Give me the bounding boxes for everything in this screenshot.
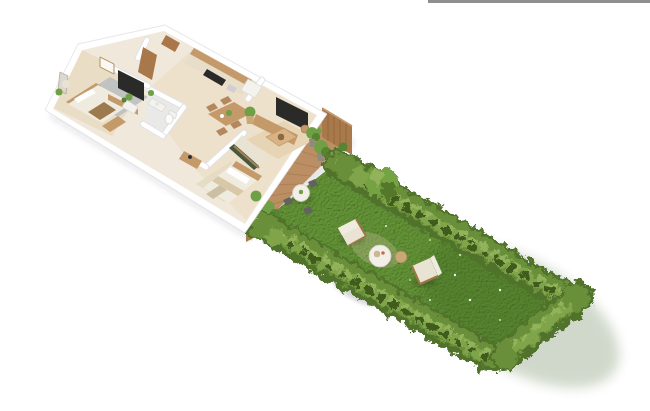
table-bowl [220,114,224,118]
toilet [165,114,173,124]
sink-basin [155,102,159,106]
round-coffee-table [369,245,391,267]
table-drink [381,251,385,255]
hall-plant [126,94,133,101]
bedroom-chair [62,80,70,88]
bedroom2-plant [251,191,262,202]
dresser-item [188,155,192,159]
hall-plant-small [122,98,127,103]
table-tray [374,251,380,257]
living-plant-pot [309,139,315,147]
bathroom-plant [148,90,154,96]
wicker-side-table [395,251,407,263]
bedroom-plant [56,89,63,96]
plant-basket [246,116,254,124]
coffee-table-tray [278,134,284,140]
table-plant [226,110,232,116]
basket-plant [245,107,256,118]
floor-plan-render [0,0,650,411]
isometric-scene [0,0,650,411]
window-top-edge-bar [428,0,650,3]
bistro-table-plant [299,190,303,194]
